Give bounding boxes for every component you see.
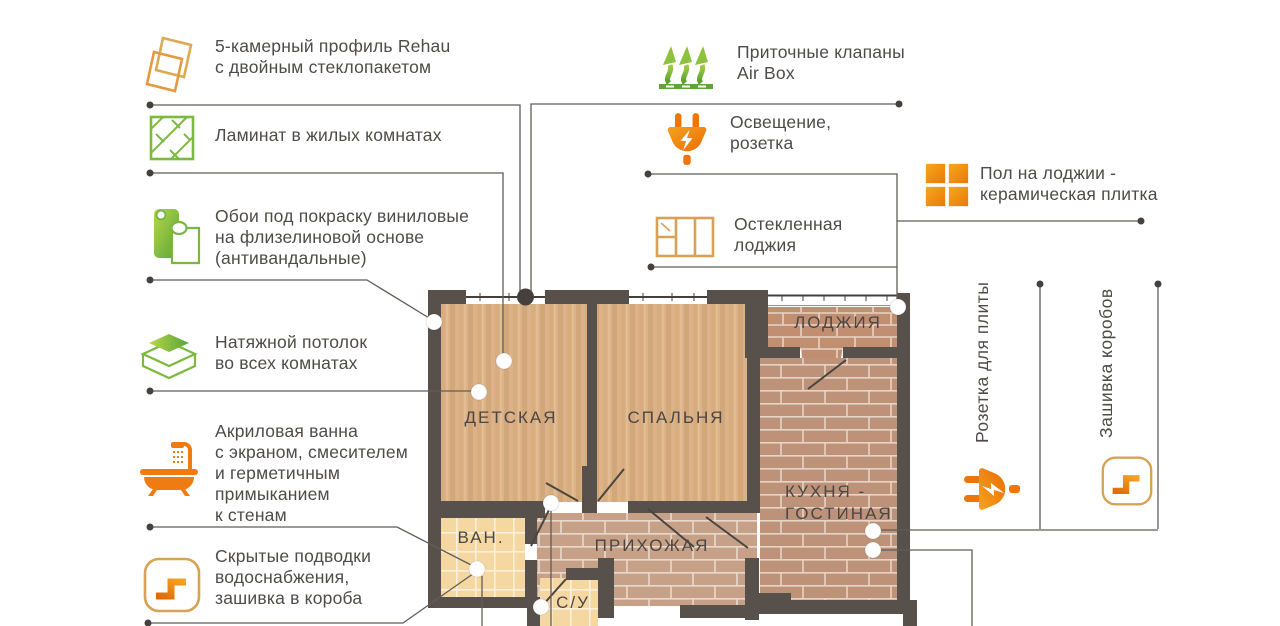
annotation-line: примыканием [215,484,408,505]
connector-dot-ceiling [471,384,487,400]
room-label-nursery: ДЕТСКАЯ [464,408,557,427]
annotation-line: (антивандальные) [215,248,469,269]
stretch-ceiling-icon [140,328,198,386]
annotation-line: Зашивка коробов [1096,288,1117,438]
label-glazed-loggia: Остекленная лоджия [734,214,842,256]
connector-dot-wallpaper [426,314,442,330]
room-label-loggia: ЛОДЖИЯ [794,313,882,332]
annotation-line: Air Box [737,63,905,84]
label-duct-boxing: Зашивка коробов [1096,288,1117,438]
annotation-line: розетка [730,133,831,154]
power-plug-icon [662,110,712,168]
room-label-bedroom: СПАЛЬНЯ [627,408,724,427]
room-label-hallway: ПРИХОЖАЯ [595,536,710,555]
power-plug-icon-rotated [965,462,1025,516]
room-floors [441,304,897,626]
window-profile-icon [145,35,195,93]
label-air-valve: Приточные клапаны Air Box [737,42,905,84]
connector-dot-wc [533,599,549,615]
annotation-line: водоснабжения, [215,567,371,588]
annotation-line: Приточные клапаны [737,42,905,63]
annotation-line: Остекленная [734,214,842,235]
annotation-line: Пол на лоджии - [980,163,1158,184]
annotation-line: 5-камерный профиль Rehau [215,36,450,57]
annotation-line: керамическая плитка [980,184,1158,205]
annotation-line: Ламинат в жилых комнатах [215,125,442,146]
connector-dot-bath-door [543,495,559,511]
label-bathtub: Акриловая ванна с экраном, смесителем и … [215,421,408,526]
annotation-line: Обои под покраску виниловые [215,206,469,227]
label-wallpaper: Обои под покраску виниловые на флизелино… [215,206,469,269]
annotation-line: Скрытые подводки [215,546,371,567]
annotation-line: и герметичным [215,463,408,484]
room-bedroom-floor [597,304,747,502]
label-loggia-tile: Пол на лоджии - керамическая плитка [980,163,1158,205]
room-label-kitchen-line2: ГОСТИНАЯ [785,504,893,523]
annotation-line: зашивка в короба [215,588,371,609]
room-nursery-floor [441,304,587,502]
hidden-pipes-icon-right [1100,455,1154,507]
label-stretch-ceiling: Натяжной потолок во всех комнатах [215,332,367,374]
label-window-profile: 5-камерный профиль Rehau с двойным стекл… [215,36,450,78]
room-kitchen-floor [760,358,897,600]
laminate-icon [148,114,196,162]
ceramic-tile-icon [924,162,970,208]
annotation-line: Акриловая ванна [215,421,408,442]
airbox-valve-dot [517,289,534,306]
connector-dot-ducts [865,542,881,558]
annotation-line: на флизелиновой основе [215,227,469,248]
annotation-line: к стенам [215,505,408,526]
annotation-line: лоджия [734,235,842,256]
label-lighting-socket: Освещение, розетка [730,112,831,154]
hidden-pipes-icon [142,556,202,614]
annotation-line: Натяжной потолок [215,332,367,353]
annotation-line: во всех комнатах [215,353,367,374]
room-label-kitchen-line1: КУХНЯ - [785,482,866,501]
annotation-line: с двойным стеклопакетом [215,57,450,78]
label-laminate: Ламинат в жилых комнатах [215,125,442,146]
label-hidden-pipes: Скрытые подводки водоснабжения, зашивка … [215,546,371,609]
annotation-line: с экраном, смесителем [215,442,408,463]
apartment-finish-infographic: ДЕТСКАЯ СПАЛЬНЯ ЛОДЖИЯ КУХНЯ - ГОСТИНАЯ … [0,0,1280,626]
annotation-line: Розетка для плиты [972,282,993,443]
annotation-line: Освещение, [730,112,831,133]
connector-dot-stove-socket [865,523,881,539]
connector-dot-laminate [496,353,512,369]
bathtub-icon [138,438,200,498]
connector-dot-bathtub [469,561,485,577]
room-label-bathroom: ВАН. [457,528,504,547]
label-stove-socket: Розетка для плиты [972,282,993,443]
room-label-wc: С/У [556,593,590,612]
air-supply-valve-icon [658,41,714,91]
glazed-loggia-icon [654,213,716,261]
connector-dot-loggia [890,299,906,315]
floor-plan: ДЕТСКАЯ СПАЛЬНЯ ЛОДЖИЯ КУХНЯ - ГОСТИНАЯ … [0,0,1280,626]
wallpaper-icon [152,204,202,266]
